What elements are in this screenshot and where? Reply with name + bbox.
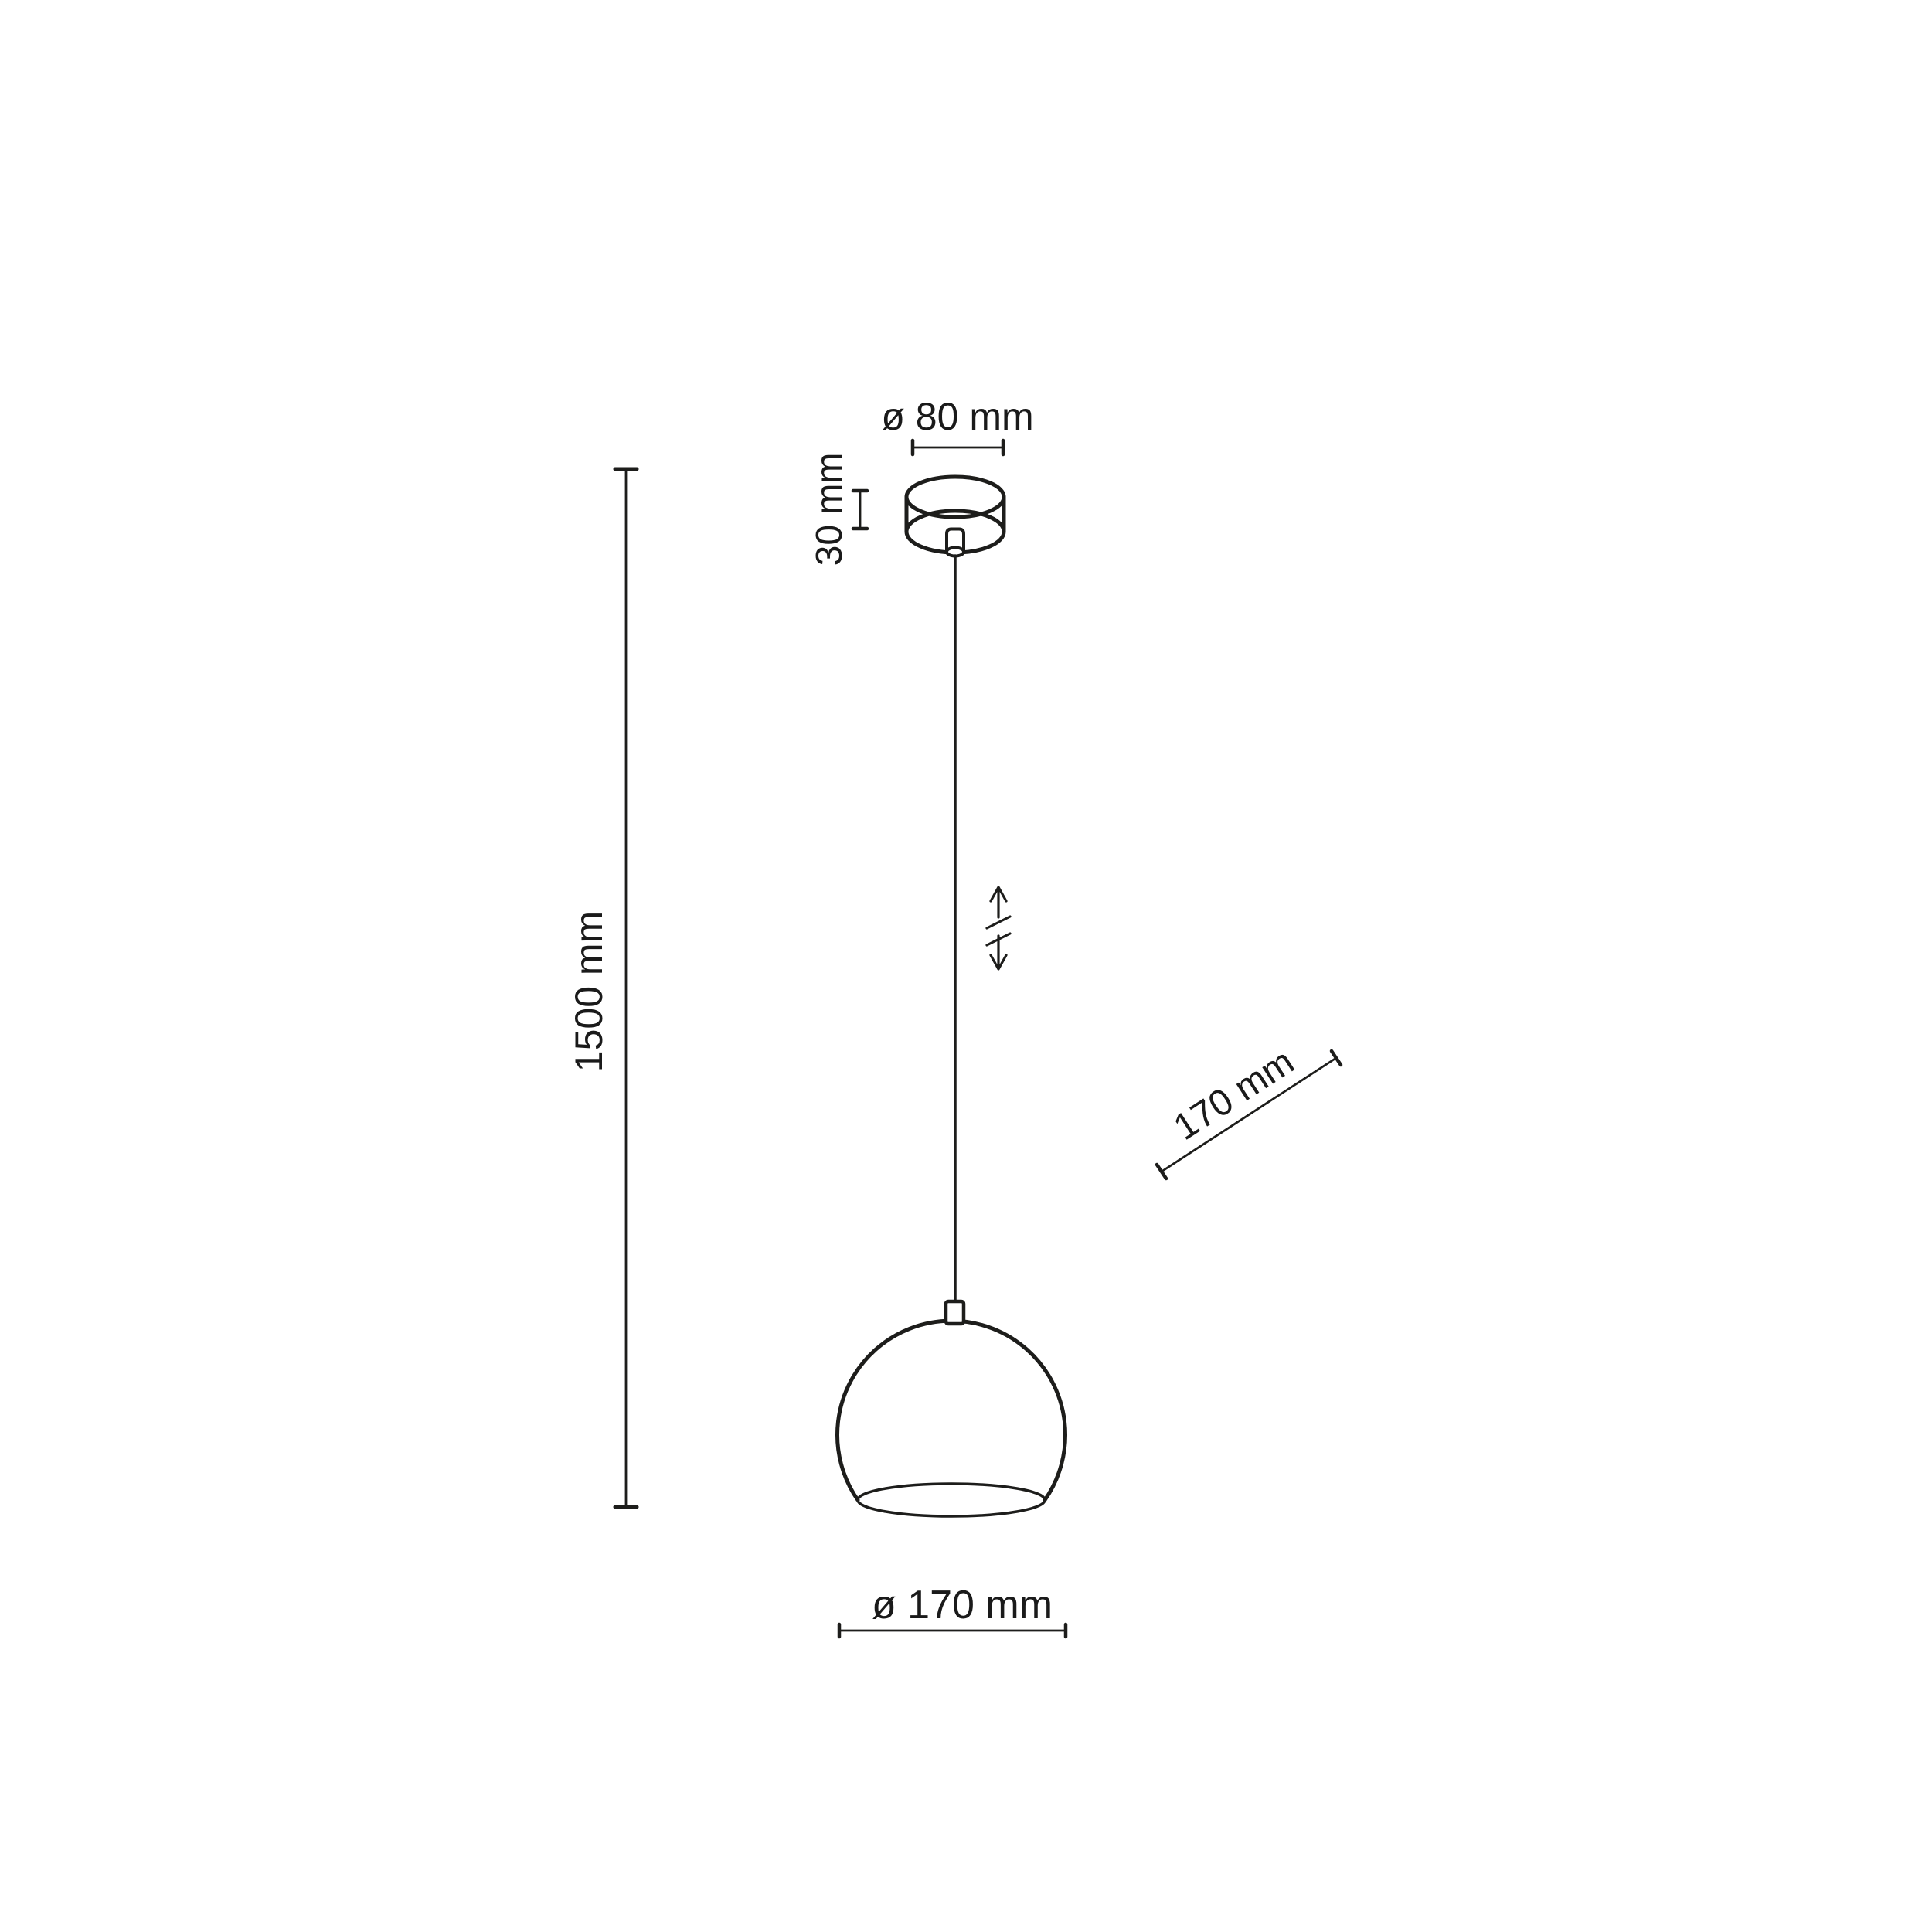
dimension-label-shade-diameter: ø 170 mm <box>872 1585 1053 1625</box>
pendant-lamp-line-art <box>0 0 1932 1932</box>
dimension-label-suspension-height: 1500 mm <box>570 911 608 1072</box>
shade-outline <box>838 1301 1066 1516</box>
dimension-label-canopy-diameter: ø 80 mm <box>881 397 1033 436</box>
cable-gland-outline <box>947 529 964 556</box>
dimension-line-suspension-height <box>615 469 637 1507</box>
dimension-line-canopy-height <box>853 491 867 529</box>
dimension-label-canopy-height: 30 mm <box>811 453 849 566</box>
dimension-drawing-canvas: ø 80 mm 30 mm 1500 mm 170 mm ø 170 mm <box>0 0 1932 1932</box>
height-adjust-arrow-icon <box>987 887 1010 969</box>
dimension-line-canopy-diameter <box>913 440 1003 454</box>
